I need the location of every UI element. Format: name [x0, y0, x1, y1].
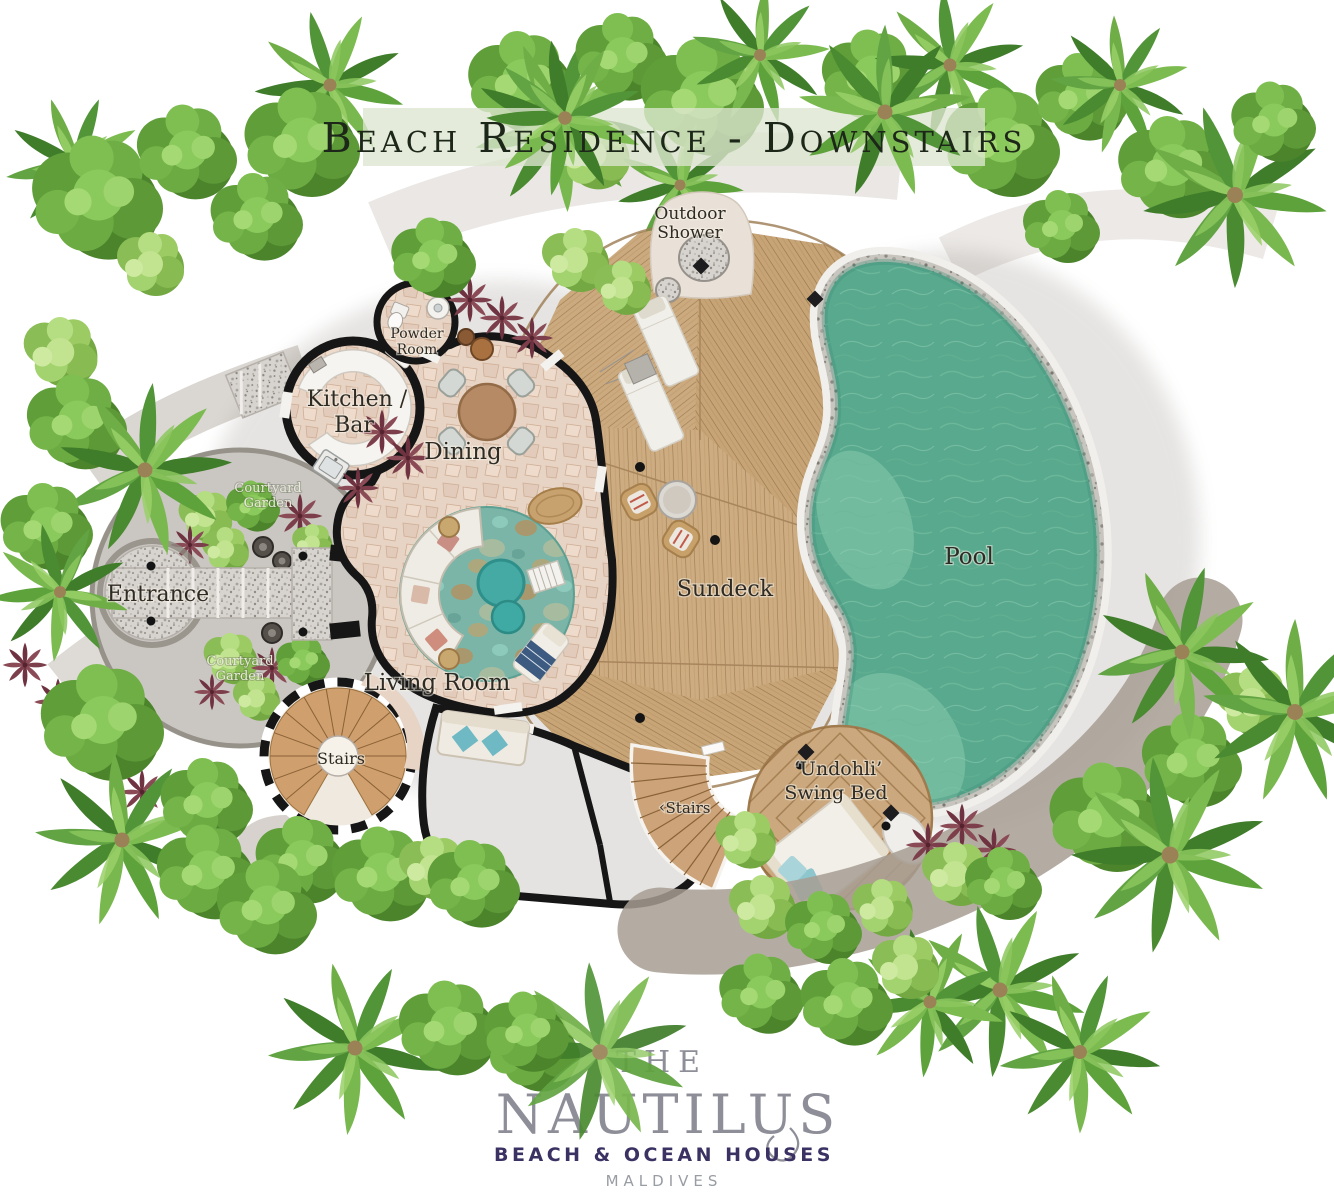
logo-country: MALDIVES	[606, 1172, 723, 1190]
label-entrance: Entrance	[107, 582, 209, 607]
label-kitchen-bar: Bar	[334, 413, 374, 438]
coffee-table-large	[478, 560, 524, 606]
label-outdoor-shower: Outdoor	[654, 204, 726, 224]
label-powder-room: Room	[397, 342, 438, 358]
label-stairs-spiral: Stairs	[317, 749, 365, 768]
label-living-room: Living Room	[364, 670, 511, 696]
label-powder-room: Powder	[390, 326, 444, 342]
label-kitchen-bar: Kitchen /	[307, 387, 408, 412]
floor-plan-illustration: Beach Residence - Downstairs	[0, 0, 1334, 1200]
label-swing-bed: Swing Bed	[784, 782, 887, 804]
side-table	[439, 517, 459, 537]
coffee-table-small	[492, 601, 524, 633]
label-courtyard-garden-upper: Garden	[244, 496, 293, 511]
dining-table	[459, 384, 515, 440]
label-courtyard-garden-lower: Courtyard	[206, 654, 273, 669]
label-dining: Dining	[424, 439, 502, 465]
label-swing-bed: ‘Undohli’	[794, 758, 882, 780]
label-sundeck: Sundeck	[677, 577, 774, 602]
label-courtyard-garden-lower: Garden	[216, 669, 265, 684]
label-courtyard-garden-upper: Courtyard	[234, 481, 301, 496]
page-title: Beach Residence - Downstairs	[322, 114, 1027, 162]
logo-tagline: BEACH & OCEAN HOUSES	[494, 1144, 834, 1166]
side-table	[439, 649, 459, 669]
label-stairs-lower-arrow: ‹	[659, 798, 665, 816]
label-stairs-lower: Stairs	[666, 799, 711, 817]
label-outdoor-shower: Shower	[657, 223, 723, 243]
label-pool: Pool	[944, 544, 994, 570]
floor-plan-page: Beach Residence - Downstairs	[0, 0, 1334, 1200]
